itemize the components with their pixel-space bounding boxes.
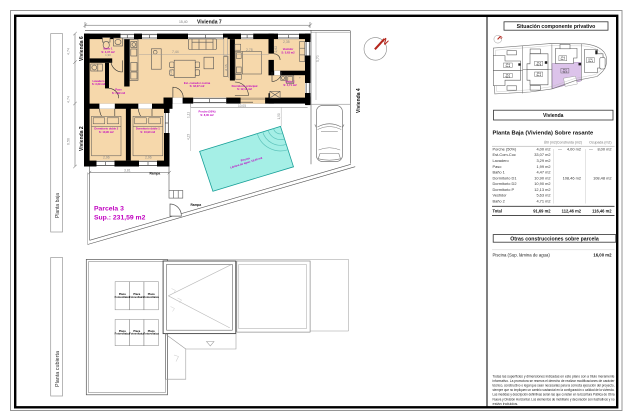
- svg-text:4,47 m2: 4,47 m2: [536, 170, 550, 175]
- svg-text:siempre que no impliquen un ca: siempre que no impliquen un cambio susta…: [493, 388, 615, 392]
- svg-text:Sup.: 231,59 m2: Sup.: 231,59 m2: [94, 215, 146, 222]
- svg-text:Dormitorio P: Dormitorio P: [493, 187, 515, 192]
- svg-text:Total: Total: [493, 208, 502, 213]
- svg-text:S: 10,90 m2: S: 10,90 m2: [140, 130, 155, 134]
- svg-text:S: 1,99 m2: S: 1,99 m2: [112, 91, 126, 95]
- svg-text:7,44: 7,44: [172, 50, 179, 54]
- svg-text:Construida (m2): Construida (m2): [557, 141, 582, 145]
- svg-text:10,90 m2: 10,90 m2: [534, 181, 550, 186]
- svg-text:S: 12,13 m2: S: 12,13 m2: [237, 87, 252, 91]
- svg-text:Vestidor: Vestidor: [493, 193, 508, 198]
- svg-text:16,00 m2: 16,00 m2: [593, 253, 612, 258]
- svg-text:Porche (50%): Porche (50%): [493, 146, 517, 151]
- svg-text:3,81: 3,81: [124, 168, 131, 172]
- svg-text:2,96: 2,96: [145, 156, 152, 160]
- svg-text:Piscina (Sup. lámina de agua): Piscina (Sup. lámina de agua): [493, 253, 551, 258]
- svg-text:10,05: 10,05: [238, 104, 246, 108]
- svg-text:4,06: 4,06: [225, 64, 229, 71]
- svg-text:Todas las superficies y dimens: Todas las superficies y dimensiones indi…: [493, 375, 615, 379]
- svg-text:1,11: 1,11: [186, 112, 190, 118]
- svg-text:Útil (m2): Útil (m2): [544, 141, 557, 145]
- svg-text:S: 5,63 m2: S: 5,63 m2: [281, 50, 295, 54]
- svg-text:33,07 m2: 33,07 m2: [534, 152, 550, 157]
- svg-text:3,29 m2: 3,29 m2: [536, 158, 550, 163]
- svg-text:4,74: 4,74: [67, 48, 71, 55]
- svg-text:12,13 m2: 12,13 m2: [534, 187, 550, 192]
- svg-text:Fotovoltaica: Fotovoltaica: [115, 332, 131, 336]
- svg-text:10,90 m2: 10,90 m2: [534, 175, 550, 180]
- svg-text:S: 4,71 m2: S: 4,71 m2: [283, 83, 297, 87]
- svg-text:4,00 m2: 4,00 m2: [536, 146, 550, 151]
- svg-text:91,69 m2: 91,69 m2: [533, 208, 551, 213]
- svg-text:Planta Baja (Vivienda) Sobre r: Planta Baja (Vivienda) Sobre rasante: [493, 131, 595, 137]
- svg-text:S: 3,29 m2: S: 3,29 m2: [92, 82, 106, 86]
- svg-text:Paso: Paso: [493, 164, 502, 169]
- svg-text:2,35: 2,35: [283, 40, 290, 44]
- svg-text:108,46 m2: 108,46 m2: [563, 175, 581, 180]
- svg-text:4,23: 4,23: [186, 134, 190, 140]
- svg-text:8,00 m2: 8,00 m2: [597, 146, 611, 151]
- svg-text:5,63 m2: 5,63 m2: [536, 193, 550, 198]
- svg-text:S: 33,07 m2: S: 33,07 m2: [190, 84, 205, 88]
- svg-text:15,40: 15,40: [179, 20, 188, 24]
- svg-text:4,74: 4,74: [67, 96, 71, 103]
- svg-text:Fotovoltaica: Fotovoltaica: [144, 295, 160, 299]
- svg-text:Fotovoltaica: Fotovoltaica: [144, 332, 160, 336]
- svg-text:2,78: 2,78: [246, 48, 253, 52]
- svg-text:Dormitorio D1: Dormitorio D1: [493, 175, 517, 180]
- svg-text:—: —: [558, 146, 562, 151]
- svg-text:Est-Com-Coc: Est-Com-Coc: [493, 152, 516, 157]
- svg-text:1,90: 1,90: [105, 53, 111, 57]
- svg-text:1,50: 1,50: [277, 113, 281, 119]
- svg-text:116,46 m2: 116,46 m2: [592, 208, 612, 213]
- svg-text:Baño 1: Baño 1: [493, 170, 505, 175]
- svg-text:Dormitorio D2: Dormitorio D2: [493, 181, 517, 186]
- svg-text:Parcela 3: Parcela 3: [94, 206, 124, 213]
- svg-text:técnico, constructivo o legal: técnico, constructivo o legal que sean n…: [493, 384, 615, 388]
- svg-text:Vivienda: Vivienda: [543, 113, 564, 119]
- svg-text:108,48 m2: 108,48 m2: [593, 175, 611, 180]
- svg-text:están incluidos.: están incluidos.: [493, 402, 519, 406]
- svg-text:Rampa: Rampa: [150, 171, 161, 175]
- svg-text:Rampa: Rampa: [191, 203, 202, 207]
- svg-text:Nueva y División Horizontal. L: Nueva y División Horizontal. Los element…: [493, 397, 615, 401]
- svg-text:4,39: 4,39: [169, 69, 173, 76]
- svg-text:Planta cubierta: Planta cubierta: [55, 351, 61, 387]
- svg-text:S: 10,90 m2: S: 10,90 m2: [99, 130, 114, 134]
- svg-text:Fotovoltaica: Fotovoltaica: [115, 295, 131, 299]
- svg-text:Otras construcciones sobre par: Otras construcciones sobre parcela: [510, 236, 599, 242]
- svg-text:informativo. La promotora se r: informativo. La promotora se reserva el …: [493, 379, 616, 383]
- svg-text:—: —: [589, 146, 593, 151]
- svg-text:S: 8,00 m2: S: 8,00 m2: [200, 113, 214, 117]
- svg-text:1,99 m2: 1,99 m2: [536, 164, 550, 169]
- svg-text:112,46 m2: 112,46 m2: [562, 208, 582, 213]
- svg-text:2,96: 2,96: [103, 156, 110, 160]
- svg-text:+: +: [299, 75, 301, 79]
- svg-text:4,00 m2: 4,00 m2: [567, 146, 581, 151]
- svg-text:5,70: 5,70: [316, 55, 320, 62]
- svg-text:Baño 2: Baño 2: [493, 199, 505, 204]
- svg-text:Lavadero: Lavadero: [493, 158, 509, 163]
- svg-text:Ocupada (m2): Ocupada (m2): [589, 141, 611, 145]
- svg-text:Las medidas y descripción defi: Las medidas y descripción definitivas se…: [493, 393, 616, 397]
- svg-text:Planta baja: Planta baja: [55, 193, 61, 218]
- svg-text:2,62: 2,62: [274, 46, 278, 53]
- svg-text:Vivienda 4: Vivienda 4: [356, 88, 362, 113]
- svg-text:Vivienda 7: Vivienda 7: [197, 20, 222, 26]
- svg-text:Situación componente privativo: Situación componente privativo: [517, 24, 596, 30]
- svg-text:6,56: 6,56: [67, 138, 71, 145]
- svg-text:4,71 m2: 4,71 m2: [536, 199, 550, 204]
